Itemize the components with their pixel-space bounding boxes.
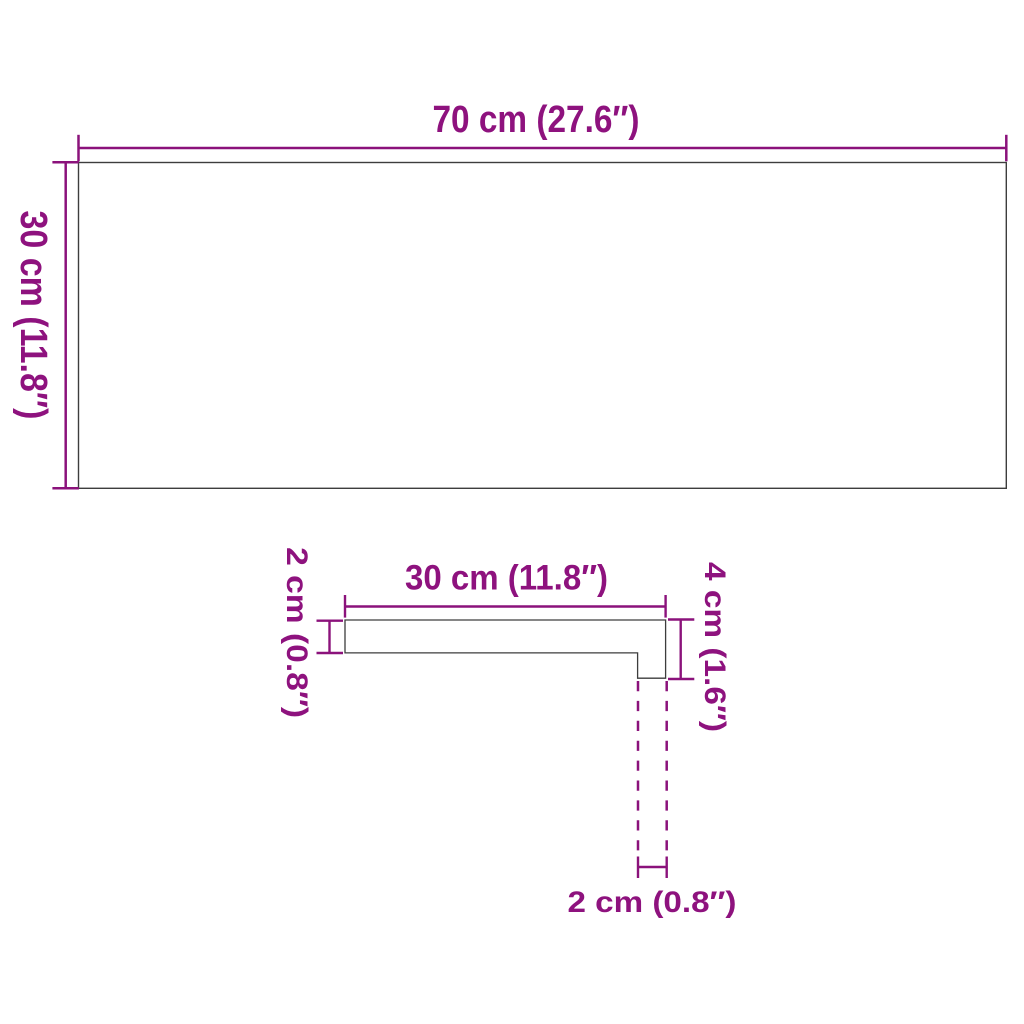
svg-text:2 cm (0.8″): 2 cm (0.8″) <box>280 547 313 718</box>
svg-text:2 cm (0.8″): 2 cm (0.8″) <box>568 886 737 919</box>
svg-text:30 cm (11.8″): 30 cm (11.8″) <box>12 211 54 420</box>
svg-text:70 cm (27.6″): 70 cm (27.6″) <box>433 99 640 141</box>
svg-text:30 cm (11.8″): 30 cm (11.8″) <box>405 558 608 597</box>
svg-text:4 cm (1.6″): 4 cm (1.6″) <box>698 562 731 732</box>
